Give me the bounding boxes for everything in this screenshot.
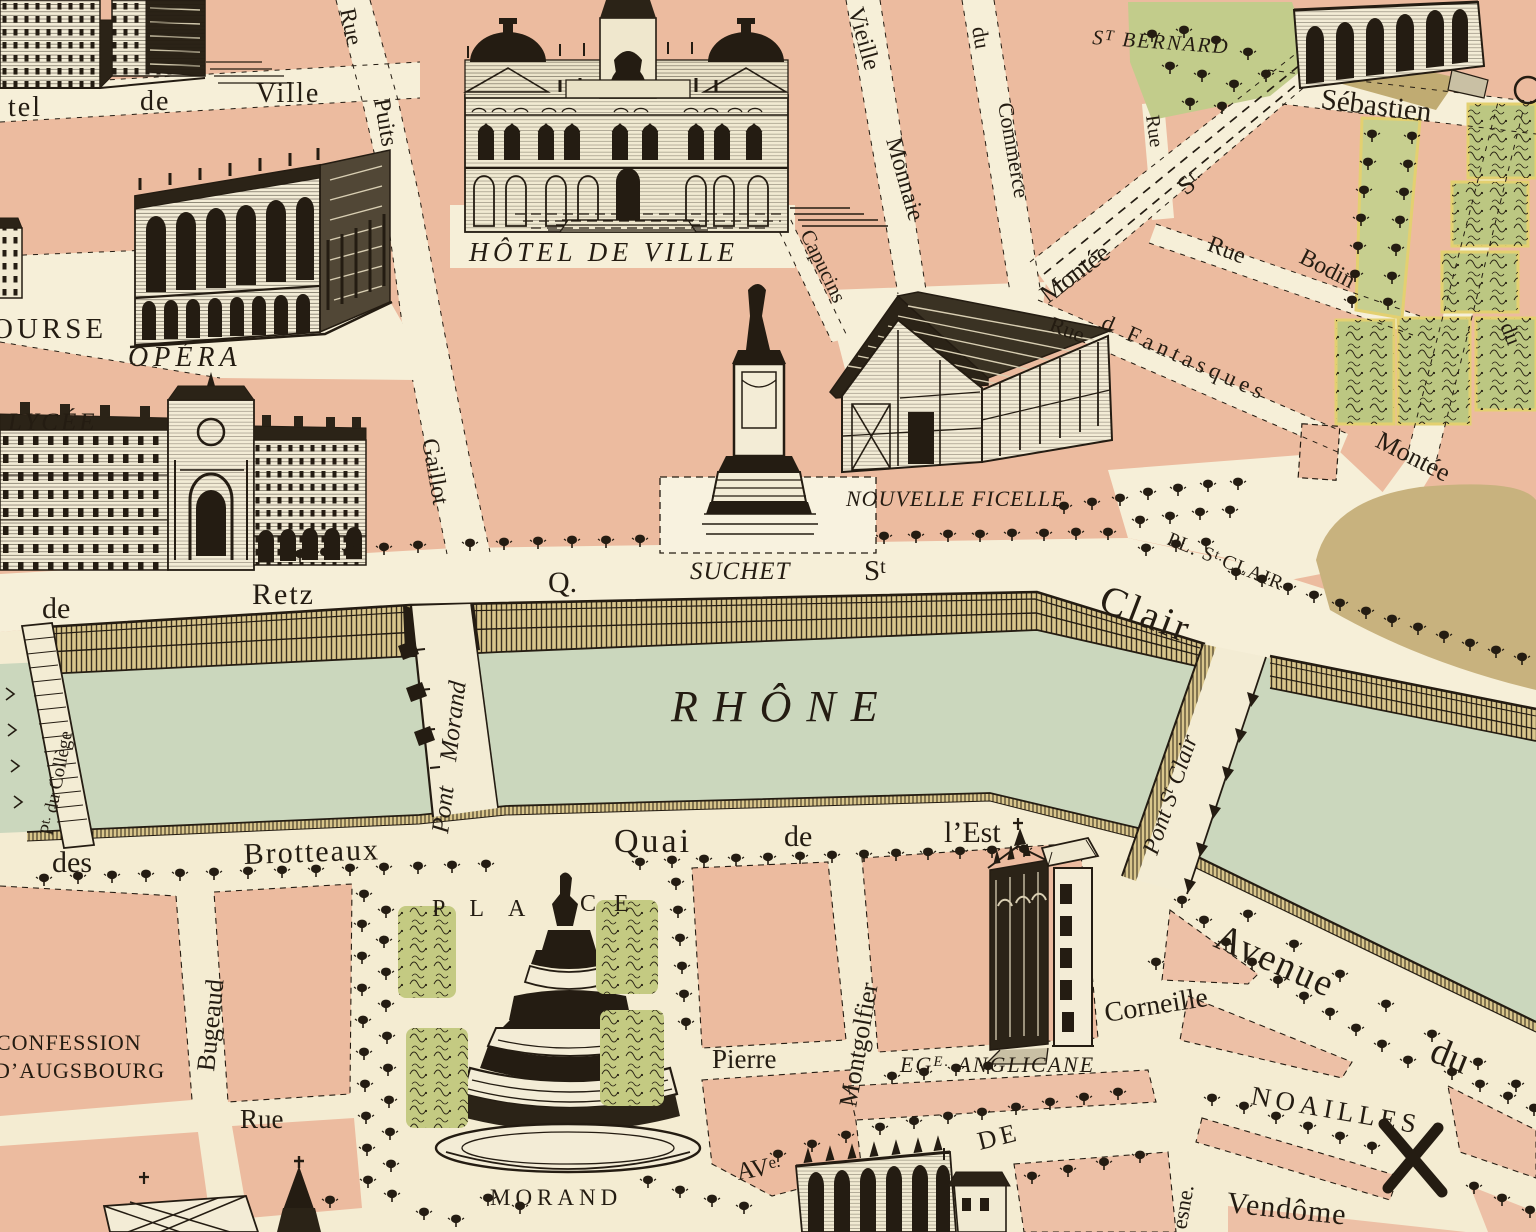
svg-text:de: de	[784, 820, 812, 853]
svg-text:CE: CE	[580, 891, 647, 917]
svg-text:de: de	[42, 592, 70, 625]
svg-text:PLA: PLA	[432, 896, 549, 922]
svg-text:D’AUGSBOURG: D’AUGSBOURG	[0, 1058, 165, 1083]
svg-text:LYCÉE: LYCÉE	[7, 408, 98, 436]
svg-text:CONFESSION: CONFESSION	[0, 1030, 142, 1055]
svg-text:Q.: Q.	[548, 566, 577, 599]
svg-text:Rue: Rue	[240, 1104, 284, 1134]
svg-text:Pierre: Pierre	[712, 1044, 776, 1074]
svg-text:SUCHET: SUCHET	[690, 558, 792, 585]
svg-text:EGE. ANGLICANE: EGE. ANGLICANE	[899, 1052, 1095, 1077]
svg-text:MORAND: MORAND	[490, 1185, 622, 1210]
svg-text:de: de	[140, 86, 170, 117]
svg-text:Quai: Quai	[614, 823, 692, 860]
svg-text:OPÉRA: OPÉRA	[128, 342, 242, 373]
svg-text:tel: tel	[8, 92, 42, 123]
svg-text:des: des	[52, 846, 92, 879]
svg-text:OURSE: OURSE	[0, 313, 107, 345]
svg-text:Rue: Rue	[1141, 114, 1167, 149]
svg-text:NOUVELLE FICELLE: NOUVELLE FICELLE	[845, 486, 1066, 511]
svg-text:Ville: Ville	[256, 78, 320, 109]
svg-text:Retz: Retz	[252, 578, 315, 611]
svg-text:Brotteaux: Brotteaux	[243, 833, 380, 871]
svg-text:HÔTEL DE VILLE: HÔTEL DE VILLE	[468, 237, 739, 267]
svg-text:l’Est: l’Est	[944, 816, 1001, 849]
svg-text:RHÔNE: RHÔNE	[670, 682, 893, 731]
svg-text:du: du	[967, 25, 995, 51]
